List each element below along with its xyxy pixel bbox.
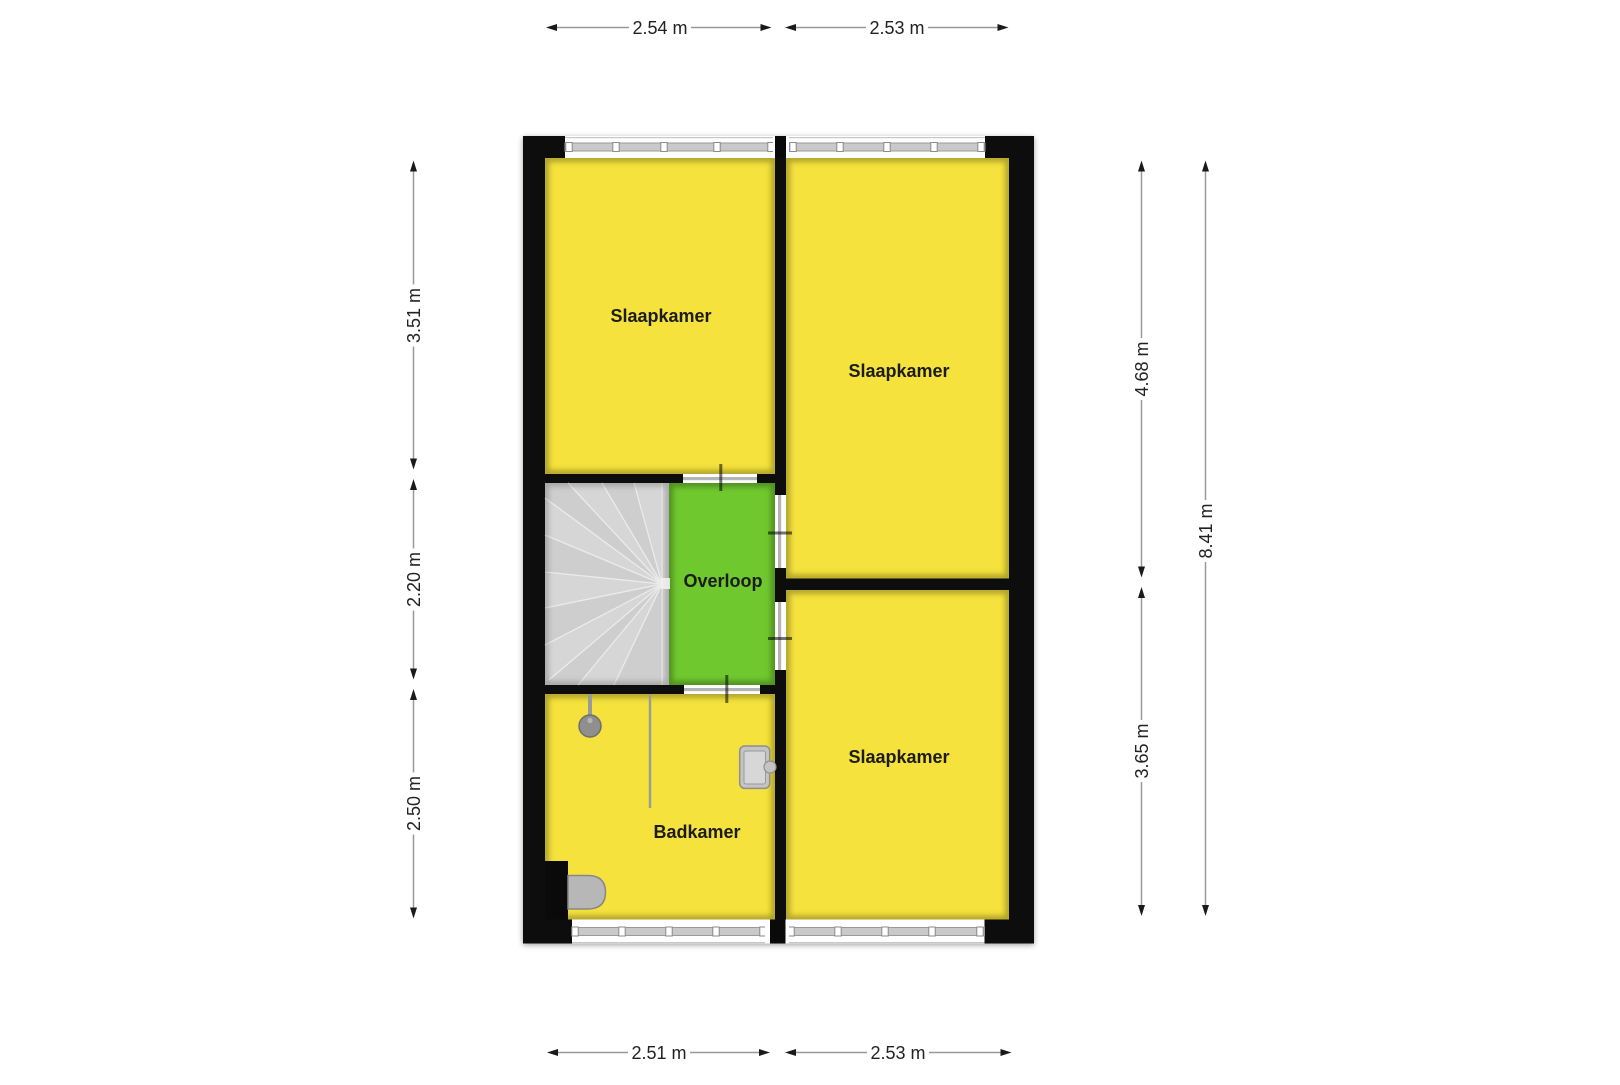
svg-text:Slaapkamer: Slaapkamer bbox=[848, 747, 949, 767]
svg-text:3.65 m: 3.65 m bbox=[1132, 723, 1152, 778]
svg-text:8.41 m: 8.41 m bbox=[1196, 503, 1216, 558]
svg-text:Badkamer: Badkamer bbox=[653, 822, 740, 842]
svg-text:2.53 m: 2.53 m bbox=[869, 18, 924, 38]
svg-text:2.54 m: 2.54 m bbox=[632, 18, 687, 38]
svg-text:Slaapkamer: Slaapkamer bbox=[848, 361, 949, 381]
svg-text:Overloop: Overloop bbox=[683, 571, 762, 591]
svg-text:4.68 m: 4.68 m bbox=[1132, 341, 1152, 396]
svg-text:3.51 m: 3.51 m bbox=[404, 288, 424, 343]
svg-text:2.51 m: 2.51 m bbox=[631, 1043, 686, 1063]
svg-text:2.53 m: 2.53 m bbox=[870, 1043, 925, 1063]
svg-text:2.20 m: 2.20 m bbox=[404, 552, 424, 607]
svg-text:Slaapkamer: Slaapkamer bbox=[610, 306, 711, 326]
svg-text:2.50 m: 2.50 m bbox=[404, 776, 424, 831]
